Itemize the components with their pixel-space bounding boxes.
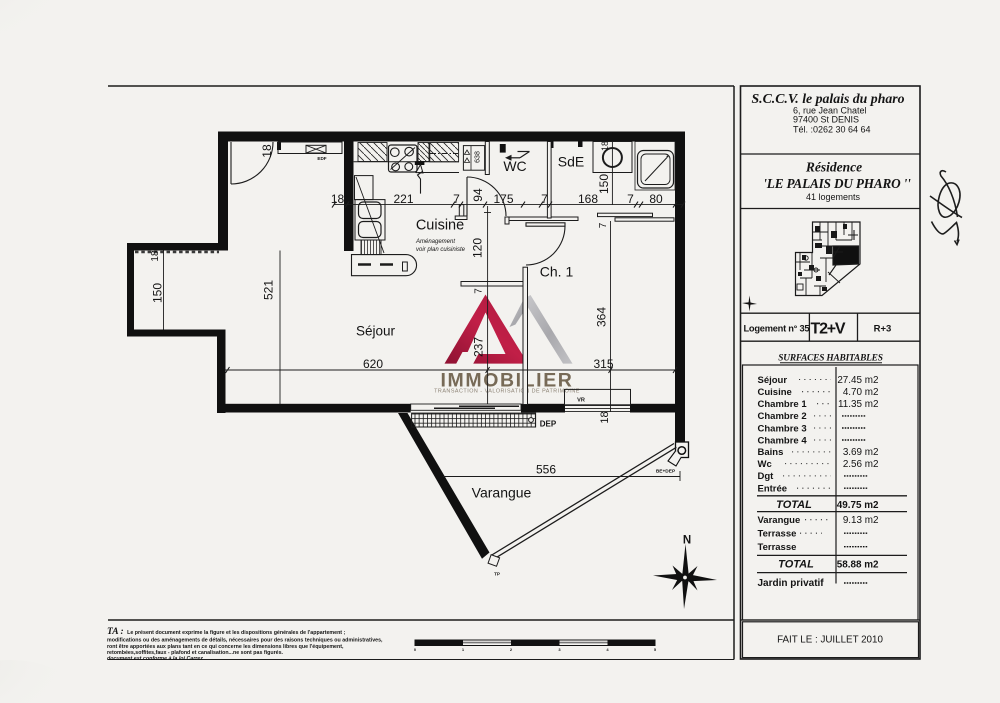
svg-text:638: 638 (475, 151, 482, 163)
svg-text:Chambre 3: Chambre 3 (758, 423, 807, 434)
svg-text:modifications ou des aménageme: modifications ou des aménagements de dét… (107, 638, 383, 644)
svg-text:120: 120 (471, 238, 485, 258)
svg-text:58.88 m2: 58.88 m2 (837, 559, 879, 570)
svg-text:7: 7 (453, 192, 460, 206)
svg-text:7: 7 (627, 192, 634, 206)
svg-text:SURFACES HABITABLES: SURFACES HABITABLES (778, 354, 883, 364)
svg-text:9.13 m2: 9.13 m2 (843, 515, 879, 526)
svg-text:Tél. :0262 30 64 64: Tél. :0262 30 64 64 (793, 125, 871, 135)
svg-text:Chambre 2: Chambre 2 (758, 411, 807, 422)
svg-text:TRANSACTION - VALORISATION DE: TRANSACTION - VALORISATION DE PATRIMOINE (434, 389, 580, 395)
svg-text:Bains: Bains (758, 447, 784, 458)
svg-text:EDF: EDF (317, 156, 326, 161)
svg-text:Jardin privatif: Jardin privatif (758, 578, 825, 589)
svg-text:94: 94 (471, 188, 485, 202)
svg-text:Séjour: Séjour (758, 375, 788, 386)
svg-text:BE+DEP: BE+DEP (656, 468, 676, 474)
svg-text:TOTAL: TOTAL (778, 558, 814, 570)
svg-text:315: 315 (593, 357, 613, 371)
svg-text:2.56 m2: 2.56 m2 (843, 459, 879, 470)
svg-text:TP: TP (494, 572, 500, 577)
svg-text:Aménagement: Aménagement (415, 239, 455, 245)
svg-text:FAIT LE : JUILLET 2010: FAIT LE : JUILLET 2010 (777, 635, 883, 646)
svg-text:Séjour: Séjour (356, 324, 396, 339)
svg-text:80: 80 (649, 192, 663, 206)
svg-text:237: 237 (472, 337, 486, 357)
svg-text:150: 150 (597, 174, 611, 194)
svg-text:Logement n° 35: Logement n° 35 (744, 324, 810, 334)
svg-text:Chambre 4: Chambre 4 (758, 435, 808, 446)
svg-text:Cuisine: Cuisine (416, 218, 464, 234)
svg-text:DEP: DEP (540, 420, 557, 429)
svg-text:18: 18 (260, 144, 274, 158)
svg-text:18: 18 (600, 141, 610, 151)
svg-text:Dgt: Dgt (758, 471, 775, 482)
svg-text:TOTAL: TOTAL (776, 499, 812, 511)
svg-text:7: 7 (541, 192, 548, 206)
svg-text:556: 556 (536, 463, 556, 477)
svg-text:18: 18 (150, 250, 161, 262)
svg-text:18: 18 (599, 411, 611, 423)
svg-text:7: 7 (474, 288, 485, 294)
svg-text:11.35 m2: 11.35 m2 (838, 399, 878, 410)
svg-text:Résidence: Résidence (805, 160, 862, 175)
svg-text:'LE PALAIS DU PHARO '': 'LE PALAIS DU PHARO '' (763, 176, 911, 191)
svg-text:Entrée: Entrée (758, 484, 788, 495)
svg-text:Cuisine: Cuisine (758, 387, 792, 398)
svg-text:Chambre 1: Chambre 1 (758, 399, 808, 410)
svg-text:Varangue: Varangue (758, 515, 801, 526)
svg-text:document est conforme à la loi: document est conforme à la loi Carrez (107, 656, 203, 662)
svg-text:620: 620 (363, 357, 383, 371)
svg-text:Wc: Wc (758, 459, 772, 470)
svg-text:168: 168 (578, 192, 598, 206)
svg-text:364: 364 (595, 307, 609, 327)
svg-text:SdE: SdE (558, 154, 584, 170)
svg-text:Terrasse: Terrasse (758, 542, 797, 553)
svg-text:221: 221 (393, 192, 413, 206)
svg-text:175: 175 (493, 192, 513, 206)
svg-text:49.75 m2: 49.75 m2 (837, 500, 879, 511)
svg-text:3.69 m2: 3.69 m2 (843, 447, 879, 458)
svg-text:T2+V: T2+V (811, 321, 846, 338)
svg-text:voir plan cuisiniste: voir plan cuisiniste (416, 247, 466, 253)
svg-text:N: N (683, 535, 691, 547)
svg-text:97400 St DENIS: 97400 St DENIS (793, 115, 859, 125)
svg-text:521: 521 (262, 280, 276, 300)
svg-text:Terrasse: Terrasse (758, 529, 797, 540)
svg-text:41 logements: 41 logements (806, 192, 861, 202)
svg-text:WC: WC (503, 158, 526, 174)
svg-text:S.C.C.V. le palais du pharo: S.C.C.V. le palais du pharo (751, 91, 904, 106)
svg-text:Varangue: Varangue (472, 485, 532, 501)
svg-text:150: 150 (151, 283, 165, 303)
svg-text:27.45 m2: 27.45 m2 (837, 375, 878, 386)
svg-text:18: 18 (331, 192, 345, 206)
svg-text:Ch. 1: Ch. 1 (540, 264, 574, 280)
svg-text:VR: VR (577, 397, 585, 403)
svg-text:R+3: R+3 (874, 324, 892, 335)
svg-text:7: 7 (598, 222, 609, 228)
svg-text:4.70 m2: 4.70 m2 (843, 387, 879, 398)
